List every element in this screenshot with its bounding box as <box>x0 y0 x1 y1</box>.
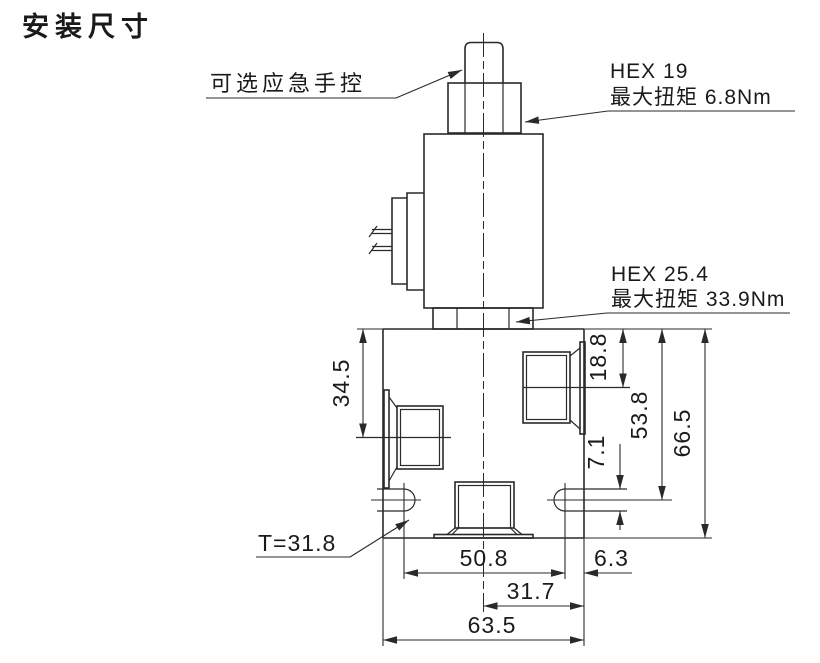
right-port <box>523 342 630 434</box>
drawing-canvas: 安装尺寸 可选应急手控 HEX 19 最大扭矩 6.8Nm HEX 25.4 最… <box>0 0 820 663</box>
mounting-slot-right <box>547 489 672 511</box>
manual-override-callout: 可选应急手控 <box>206 70 462 98</box>
hex19-torque-label: 最大扭矩 6.8Nm <box>610 86 772 109</box>
dimension-left-port-from-top: 34.5 <box>328 329 363 438</box>
hex254-leader-arrow <box>516 313 607 322</box>
dim-text-34-5: 34.5 <box>328 359 354 408</box>
hex19-nut <box>448 83 521 133</box>
terminal-pins <box>369 226 392 254</box>
manual-override-leader-arrow <box>396 70 462 98</box>
hex254-size-label: HEX 25.4 <box>611 263 709 286</box>
dimension-center-to-edge: 31.7 <box>484 578 585 606</box>
dimension-slot-spacing: 50.8 <box>404 545 565 573</box>
dim-text-31-7: 31.7 <box>507 578 556 604</box>
dimension-body-width: 63.5 <box>383 612 584 640</box>
dim-text-7-1: 7.1 <box>583 435 609 470</box>
hex19-leader-arrow <box>525 111 608 122</box>
mounting-dimensions-drawing: 安装尺寸 可选应急手控 HEX 19 最大扭矩 6.8Nm HEX 25.4 最… <box>0 0 820 663</box>
dimension-slot-to-edge: 6.3 <box>551 545 632 577</box>
hex19-size-label: HEX 19 <box>610 60 688 83</box>
dimension-body-height: 66.5 <box>669 329 705 538</box>
manual-override-label: 可选应急手控 <box>210 71 366 96</box>
dim-text-53-8: 53.8 <box>626 391 652 440</box>
page-title: 安装尺寸 <box>22 12 154 42</box>
mounting-slot-left <box>371 489 421 511</box>
dim-text-63-5: 63.5 <box>468 612 517 638</box>
dim-text-6-3: 6.3 <box>594 545 629 571</box>
thread-depth-label: T=31.8 <box>258 530 336 556</box>
dim-text-50-8: 50.8 <box>460 545 509 571</box>
dimension-slot-center-from-top: 53.8 <box>626 329 662 500</box>
dimension-slot-width: 7.1 <box>583 435 620 530</box>
dim-text-18-8: 18.8 <box>585 333 611 382</box>
dimension-right-port-from-top: 18.8 <box>585 329 623 388</box>
dim-text-66-5: 66.5 <box>669 409 695 458</box>
hex254-callout: HEX 25.4 最大扭矩 33.9Nm <box>516 263 790 322</box>
hex254-torque-label: 最大扭矩 33.9Nm <box>611 288 785 311</box>
hex19-callout: HEX 19 最大扭矩 6.8Nm <box>525 60 795 122</box>
coil-connector <box>369 193 424 290</box>
left-port <box>356 390 451 488</box>
